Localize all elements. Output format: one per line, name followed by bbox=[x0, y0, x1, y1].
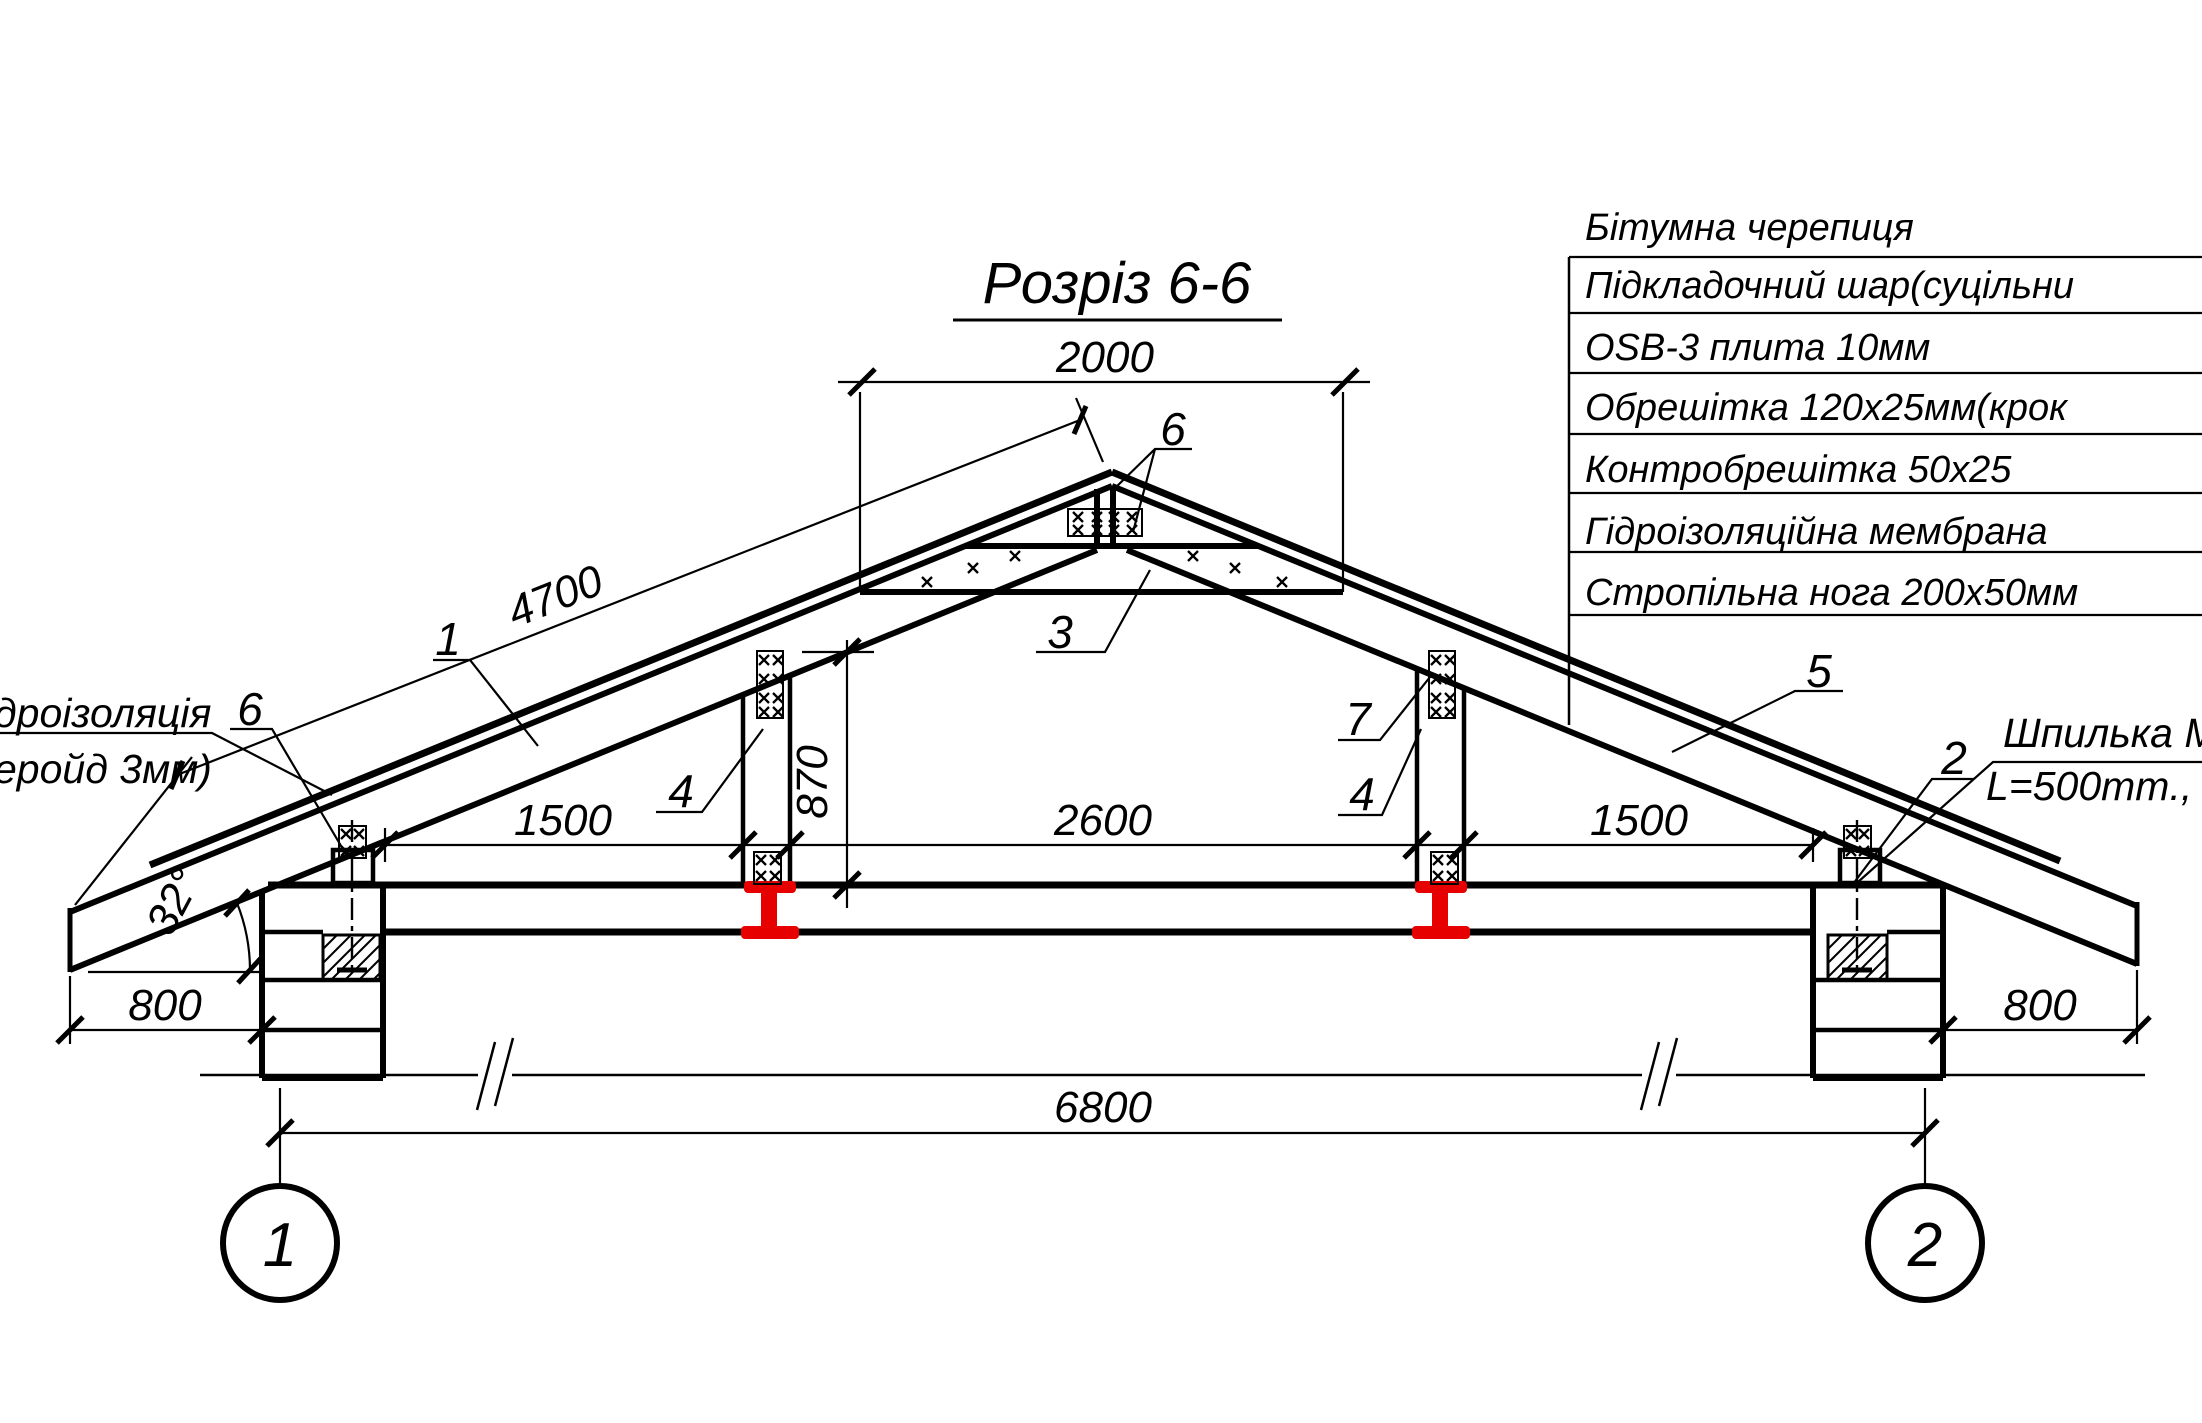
dim-bay-right: 1500 bbox=[1590, 796, 1688, 845]
drawing-sheet: 2000 4700 1500 2600 1500 870 800 bbox=[0, 0, 2202, 1423]
break-symbol-right bbox=[1641, 1038, 1677, 1110]
callout-collar-tie: 3 bbox=[1047, 606, 1073, 658]
axis-number-left: 1 bbox=[263, 1211, 297, 1280]
steel-beam-right bbox=[1412, 881, 1470, 939]
ground-line bbox=[200, 1038, 2145, 1110]
ceiling bbox=[268, 885, 1943, 932]
callout-rafter-right: 5 bbox=[1806, 645, 1832, 697]
dim-overall-span: 6800 bbox=[1054, 1083, 1152, 1132]
legend-row-1: Бітумна черепиця bbox=[1585, 207, 1914, 249]
axis-grid: 1 2 bbox=[223, 1186, 1982, 1300]
rafter-left-top bbox=[70, 486, 1112, 912]
dim-overhang-right: 800 bbox=[2003, 981, 2077, 1030]
stud-label-line1: Шпилька М bbox=[2003, 710, 2202, 756]
legend-row-4: Обрешітка 120x25мм(крок bbox=[1585, 387, 2069, 429]
dim-roof-angle: 32° bbox=[137, 861, 212, 943]
callout-strut: 7 bbox=[1345, 693, 1372, 745]
callout-plate-eave: 6 bbox=[237, 683, 263, 735]
legend-row-6: Гідроізоляційна мембрана bbox=[1585, 511, 2048, 553]
dim-bay-left: 1500 bbox=[514, 796, 612, 845]
dim-bay-center: 2600 bbox=[1053, 796, 1152, 845]
angle-arc bbox=[237, 903, 250, 970]
break-symbol-left bbox=[477, 1038, 513, 1110]
stud-label-line2: L=500mm., к bbox=[1986, 763, 2202, 809]
rafter-left-bottom bbox=[70, 550, 1097, 970]
legend-row-3: OSB-3 плита 10мм bbox=[1585, 327, 1930, 369]
callout-rafter-left: 1 bbox=[435, 613, 461, 665]
axis-number-right: 2 bbox=[1907, 1211, 1942, 1280]
dim-overhang-left: 800 bbox=[128, 981, 202, 1030]
callout-post-left: 4 bbox=[668, 765, 694, 817]
hydro-label-line2: еройд 3мм) bbox=[0, 746, 212, 792]
roofing-left bbox=[150, 472, 1112, 865]
callout-post-right: 4 bbox=[1349, 768, 1375, 820]
legend: Бітумна черепиця Підкладочний шар(суціль… bbox=[1569, 207, 2202, 615]
title-block: Розріз 6-6 bbox=[953, 251, 1282, 320]
page-title: Розріз 6-6 bbox=[983, 251, 1252, 316]
legend-row-5: Контробрешітка 50x25 bbox=[1585, 449, 2012, 491]
hydro-label-line1: дроізоляція bbox=[0, 690, 211, 736]
callout-plate-ridge: 6 bbox=[1160, 403, 1186, 455]
dim-collar-tie-span: 2000 bbox=[1055, 333, 1154, 382]
steel-beam-left bbox=[741, 881, 799, 939]
legend-row-7: Стропільна нога 200x50мм bbox=[1585, 572, 2078, 614]
callout-anchor-stud: 2 bbox=[1940, 732, 1967, 784]
legend-row-2: Підкладочний шар(суцільни bbox=[1585, 265, 2074, 307]
dim-post-height: 870 bbox=[788, 745, 837, 819]
